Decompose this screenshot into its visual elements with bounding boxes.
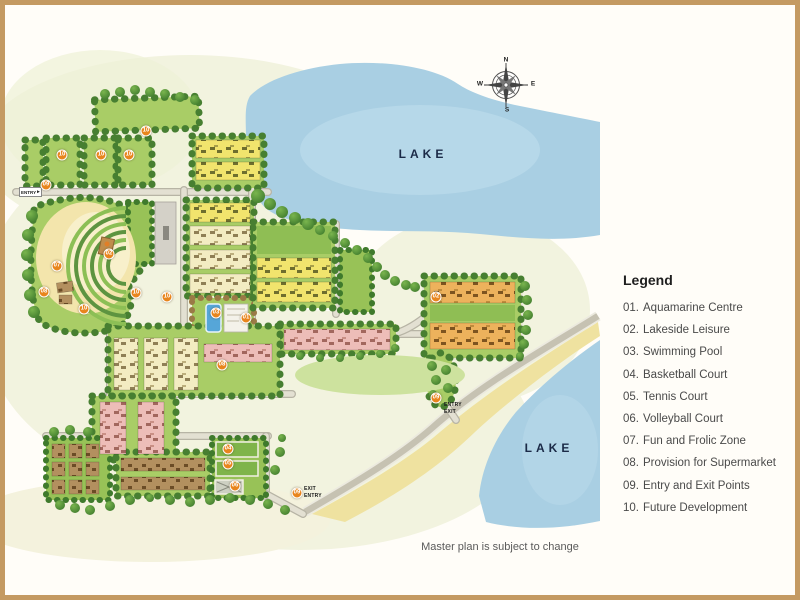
compass-east-label: E bbox=[531, 81, 535, 88]
plan-marker: 10 bbox=[57, 150, 68, 161]
legend-item-number: 04. bbox=[623, 369, 639, 381]
legend-item-label: Swimming Pool bbox=[643, 346, 722, 358]
legend-item: 04.Basketball Court bbox=[623, 369, 776, 381]
plan-marker: 01 bbox=[241, 313, 252, 324]
plan-marker: 02 bbox=[104, 249, 115, 260]
plan-marker-number: 10 bbox=[126, 152, 133, 158]
legend-item-label: Lakeside Leisure bbox=[643, 324, 730, 336]
plan-marker-number: 07 bbox=[54, 263, 61, 269]
plan-marker: 10 bbox=[79, 304, 90, 315]
entry-exit-label-text: EXIT bbox=[444, 409, 456, 415]
plan-marker: 08 bbox=[217, 360, 228, 371]
disclaimer-note: Master plan is subject to change bbox=[380, 541, 620, 553]
legend-item-number: 09. bbox=[623, 480, 639, 492]
plan-marker: 10 bbox=[162, 292, 173, 303]
legend-item-number: 03. bbox=[623, 346, 639, 358]
legend-item-label: Fun and Frolic Zone bbox=[643, 435, 746, 447]
plan-marker-number: 02 bbox=[433, 294, 440, 300]
entry-exit-label: EXIT bbox=[444, 409, 456, 415]
legend-item: 07.Fun and Frolic Zone bbox=[623, 435, 776, 447]
plan-marker: 04 bbox=[223, 444, 234, 455]
lake-label-top: LAKE bbox=[368, 147, 478, 161]
legend-item-label: Basketball Court bbox=[643, 369, 727, 381]
plan-marker-number: 09 bbox=[433, 395, 440, 401]
plan-marker: 06 bbox=[230, 481, 241, 492]
legend-item-label: Volleyball Court bbox=[643, 413, 723, 425]
plan-marker: 09 bbox=[41, 180, 52, 191]
plan-marker-number: 01 bbox=[243, 315, 250, 321]
plan-marker: 10 bbox=[141, 126, 152, 137]
legend-item: 05.Tennis Court bbox=[623, 391, 776, 403]
legend-item: 02.Lakeside Leisure bbox=[623, 324, 776, 336]
plan-marker-number: 06 bbox=[232, 483, 239, 489]
plan-marker-number: 10 bbox=[81, 306, 88, 312]
compass-south-label: S bbox=[505, 107, 509, 114]
legend-item: 08.Provision for Supermarket bbox=[623, 457, 776, 469]
plan-marker: 05 bbox=[223, 459, 234, 470]
plan-marker-number: 08 bbox=[41, 289, 48, 295]
plan-marker-number: 02 bbox=[106, 251, 113, 257]
legend-item-label: Provision for Supermarket bbox=[643, 457, 776, 469]
plan-marker-number: 09 bbox=[294, 490, 301, 496]
entry-exit-label-text: ENTRY bbox=[444, 402, 462, 408]
legend-item-number: 01. bbox=[623, 302, 639, 314]
legend-item-number: 02. bbox=[623, 324, 639, 336]
plan-marker-number: 10 bbox=[133, 290, 140, 296]
plan-marker: 07 bbox=[52, 261, 63, 272]
masterplan-page: .blk{fill:#a9cd66;stroke:#477f31;stroke-… bbox=[0, 0, 800, 600]
plan-marker: 03 bbox=[211, 308, 222, 319]
legend-title: Legend bbox=[623, 272, 776, 288]
plan-marker-number: 10 bbox=[98, 152, 105, 158]
entry-exit-label: ENTRY bbox=[444, 402, 462, 408]
legend-item-number: 08. bbox=[623, 457, 639, 469]
plan-marker-number: 04 bbox=[225, 446, 232, 452]
compass-north-label: N bbox=[504, 57, 509, 64]
legend-item: 06.Volleyball Court bbox=[623, 413, 776, 425]
legend-panel: Legend 01.Aquamarine Centre 02.Lakeside … bbox=[623, 272, 776, 524]
legend-item-number: 10. bbox=[623, 502, 639, 514]
plan-marker: 09 bbox=[431, 393, 442, 404]
legend-item: 09.Entry and Exit Points bbox=[623, 480, 776, 492]
plan-marker: 10 bbox=[131, 288, 142, 299]
plan-marker: 02 bbox=[431, 292, 442, 303]
plan-marker: 10 bbox=[96, 150, 107, 161]
plan-marker-number: 03 bbox=[213, 310, 220, 316]
legend-item-number: 06. bbox=[623, 413, 639, 425]
entry-exit-label-text: EXIT bbox=[304, 486, 316, 492]
legend-item-label: Entry and Exit Points bbox=[643, 480, 750, 492]
entry-exit-label-text: ENTRY bbox=[304, 493, 322, 499]
legend-item: 01.Aquamarine Centre bbox=[623, 302, 776, 314]
entry-arrow-icon: ▸ bbox=[37, 189, 40, 196]
entry-exit-label: EXIT bbox=[304, 486, 316, 492]
lake-label-bottom: LAKE bbox=[494, 441, 604, 455]
legend-item-label: Future Development bbox=[643, 502, 747, 514]
legend-item-label: Aquamarine Centre bbox=[643, 302, 743, 314]
plan-marker: 09 bbox=[292, 488, 303, 499]
entry-sign-left: ENTRY ▸ bbox=[19, 187, 42, 197]
plan-marker-number: 08 bbox=[219, 362, 226, 368]
legend-items: 01.Aquamarine Centre 02.Lakeside Leisure… bbox=[623, 302, 776, 514]
legend-item-number: 05. bbox=[623, 391, 639, 403]
entry-exit-label: ENTRY bbox=[304, 493, 322, 499]
compass-west-label: W bbox=[477, 81, 483, 88]
legend-item-label: Tennis Court bbox=[643, 391, 708, 403]
plan-marker: 08 bbox=[39, 287, 50, 298]
plan-marker-number: 10 bbox=[59, 152, 66, 158]
plan-marker: 10 bbox=[124, 150, 135, 161]
legend-item: 10.Future Development bbox=[623, 502, 776, 514]
plan-marker-number: 09 bbox=[43, 182, 50, 188]
plan-marker-number: 10 bbox=[143, 128, 150, 134]
plan-marker-number: 10 bbox=[164, 294, 171, 300]
plan-marker-number: 05 bbox=[225, 461, 232, 467]
legend-item: 03.Swimming Pool bbox=[623, 346, 776, 358]
entry-sign-left-text: ENTRY bbox=[21, 189, 36, 196]
legend-item-number: 07. bbox=[623, 435, 639, 447]
